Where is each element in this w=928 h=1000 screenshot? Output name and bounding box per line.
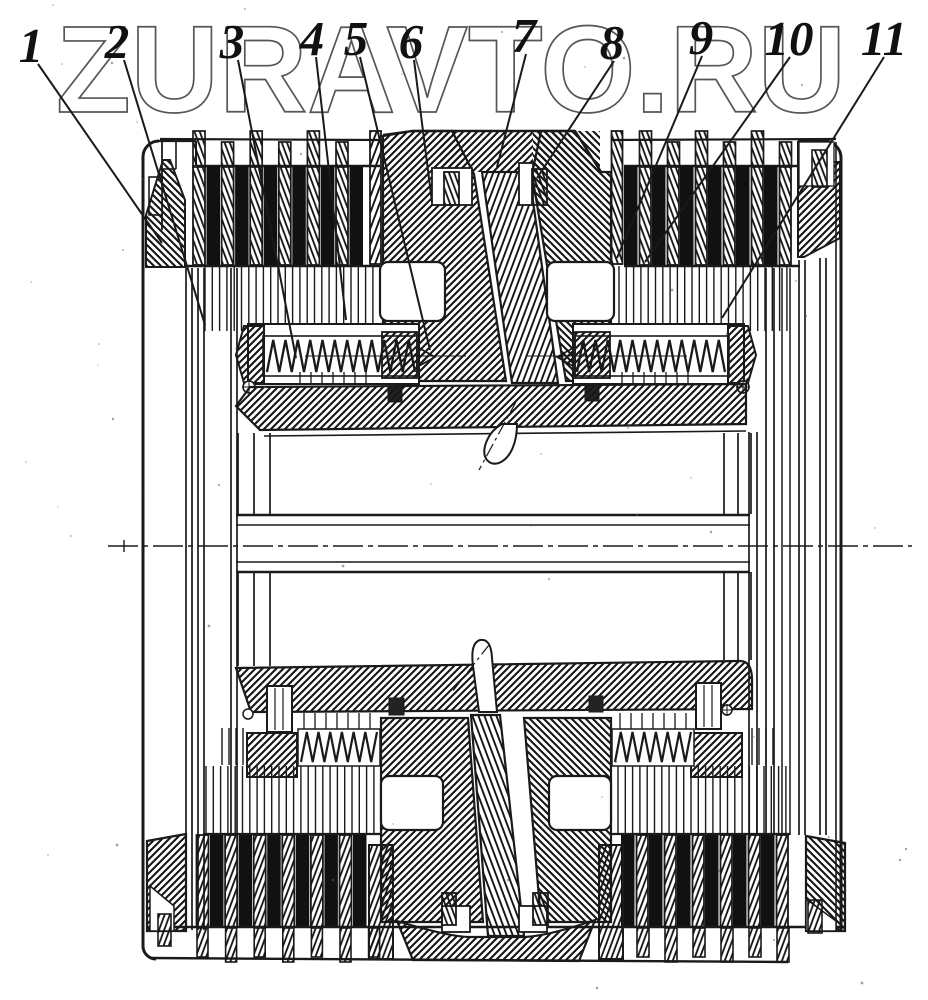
svg-text:6: 6 <box>399 14 424 69</box>
svg-text:4: 4 <box>299 11 325 66</box>
svg-text:ZURAVTO.RU: ZURAVTO.RU <box>56 2 846 139</box>
svg-text:8: 8 <box>600 15 625 70</box>
svg-text:2: 2 <box>104 14 130 69</box>
svg-text:3: 3 <box>219 14 245 69</box>
svg-text:5: 5 <box>344 11 369 66</box>
